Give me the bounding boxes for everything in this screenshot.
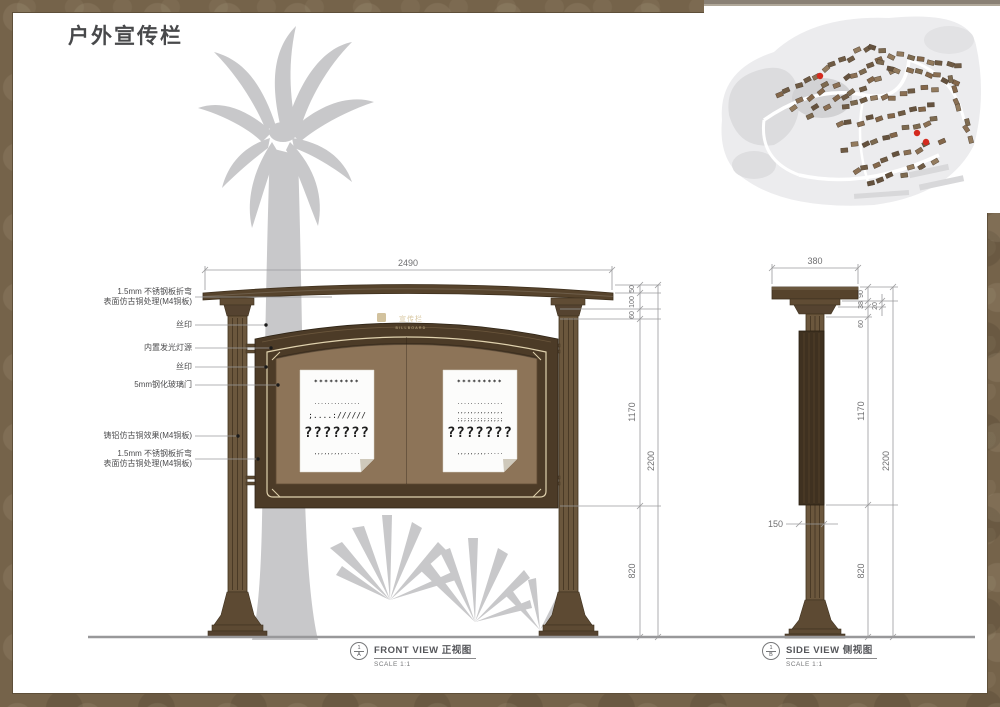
- svg-text:;....://////: ;....://////: [308, 411, 366, 420]
- svg-text:???????: ???????: [447, 425, 513, 441]
- side-view-title: SIDE VIEW 侧视图: [786, 642, 877, 659]
- svg-text:..............: ..............: [457, 400, 503, 406]
- side-view-caption: 1 B SIDE VIEW 侧视图 SCALE 1:1: [762, 642, 877, 668]
- front-view-reference-symbol: 1 A: [350, 642, 368, 660]
- annotation-silkscreen-1: 丝印: [40, 320, 192, 330]
- annotation-silkscreen-2: 丝印: [40, 362, 192, 372]
- side-board-profile: [799, 331, 824, 505]
- dim-front-overall: 2200: [646, 451, 656, 471]
- svg-text:1170: 1170: [627, 402, 637, 421]
- front-view-caption: 1 A FRONT VIEW 正视图 SCALE 1:1: [350, 642, 476, 668]
- svg-text:..............: ..............: [314, 400, 360, 406]
- svg-text:*********: *********: [457, 379, 503, 386]
- svg-text:;;;;;;;;;;;;;;: ;;;;;;;;;;;;;;: [457, 417, 503, 423]
- annotation-steel-plate-top: 1.5mm 不锈钢板折弯 表面仿古铜处理(M4铜板): [40, 287, 192, 307]
- svg-text:60: 60: [629, 311, 636, 319]
- map-location-marker: [914, 130, 920, 136]
- svg-text:,,,,,,,,,.....: ,,,,,,,,,.....: [314, 450, 360, 456]
- dim-pole-width: 150: [768, 519, 783, 529]
- logo-mark-icon: [377, 313, 386, 322]
- dim-front-width: 2490: [398, 258, 418, 268]
- svg-text:820: 820: [627, 563, 637, 578]
- svg-text:820: 820: [856, 563, 866, 578]
- svg-text:???????: ???????: [304, 425, 370, 441]
- svg-text:20: 20: [872, 302, 879, 310]
- dim-side-width: 380: [807, 256, 822, 266]
- svg-text:90: 90: [858, 290, 865, 298]
- side-view-reference-symbol: 1 B: [762, 642, 780, 660]
- dim-side-overall: 2200: [881, 451, 891, 471]
- svg-text:,,,,,,,,,.....: ,,,,,,,,,.....: [457, 450, 503, 456]
- svg-text:50: 50: [629, 285, 636, 293]
- annotation-cast-aluminum: 铸铝仿古铜效果(M4铜板): [40, 431, 192, 441]
- map-top-edge: [704, 0, 1000, 4]
- poster-left: ********* .............. ;....:////// ??…: [300, 370, 374, 472]
- svg-text:100: 100: [629, 296, 636, 308]
- svg-text:1170: 1170: [856, 401, 866, 420]
- front-view-title: FRONT VIEW 正视图: [374, 642, 476, 659]
- side-base: [792, 600, 838, 629]
- board-title: 宣传栏: [399, 314, 423, 323]
- annotation-glass-door: 5mm钢化玻璃门: [40, 380, 192, 390]
- svg-text:*********: *********: [314, 379, 360, 386]
- svg-text:60: 60: [858, 320, 865, 328]
- side-view-drawing: [772, 287, 858, 638]
- map-location-marker: [923, 139, 929, 145]
- site-location-map: [704, 0, 1000, 213]
- palm-frond-shadows: [330, 515, 567, 630]
- front-view-scale: SCALE 1:1: [374, 661, 476, 668]
- side-view-scale: SCALE 1:1: [786, 661, 877, 668]
- annotation-steel-plate-bottom: 1.5mm 不锈钢板折弯 表面仿古铜处理(M4铜板): [40, 449, 192, 469]
- svg-text:38: 38: [858, 301, 865, 309]
- drawing-sheet: 户外宣传栏: [0, 0, 1000, 707]
- map-location-marker: [817, 73, 823, 79]
- poster-right: ********* .............. ,,,,,,,,,,,,,, …: [443, 370, 517, 472]
- svg-text:,,,,,,,,,,,,,,: ,,,,,,,,,,,,,,: [457, 409, 503, 415]
- board-subtitle: BILLBOARD: [396, 326, 427, 330]
- annotation-light-source: 内置发光灯源: [40, 343, 192, 353]
